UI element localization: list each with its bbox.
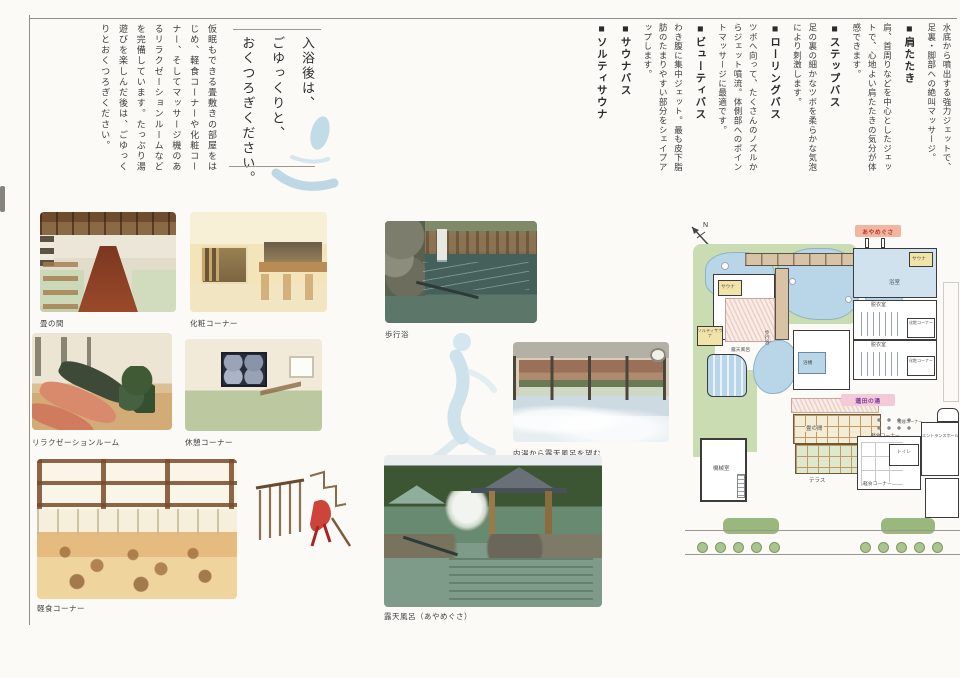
map-corridor — [775, 268, 789, 340]
photo-detail — [264, 242, 322, 262]
page-top-rule — [30, 18, 957, 19]
map-room-label: トイレ — [897, 449, 911, 454]
photo-detail — [650, 348, 666, 362]
watercolor-figure-illustration — [410, 320, 515, 470]
north-label: N — [703, 222, 708, 230]
map-room-label: 露天風呂 — [731, 348, 750, 354]
bath-section-body: 足の裏の細かなツボを柔らかな気泡により刺激します。 — [789, 23, 820, 173]
photo-detail — [223, 355, 264, 384]
photo-detail — [119, 366, 155, 413]
map-room-label: 化粧コーナー — [908, 321, 934, 326]
map-lockers — [861, 352, 901, 376]
photo-makeup-corner — [190, 212, 327, 312]
photo-caption: 休憩コーナー — [185, 437, 233, 448]
map-tree — [769, 542, 780, 553]
bath-section-heading: ■サウナバス — [616, 23, 635, 173]
map-bushes — [723, 518, 779, 534]
map-room-label: ソルティサウナ — [697, 329, 723, 339]
photo-indoor-bath-view — [513, 342, 669, 442]
photo-detail — [513, 398, 669, 442]
map-path-line — [685, 554, 960, 555]
map-lockers — [861, 312, 901, 336]
map-tree — [697, 542, 708, 553]
photo-detail — [40, 212, 176, 235]
map-pool-blob — [753, 340, 797, 394]
map-pool-striped — [707, 354, 747, 397]
photo-detail — [406, 231, 537, 253]
map-bushes — [881, 518, 935, 534]
stairs-sketch-illustration — [252, 462, 352, 567]
map-room-label: 畳の間 — [805, 426, 824, 432]
map-rock — [721, 262, 729, 270]
map-room-label: エントランスホール — [922, 434, 959, 439]
photo-detail — [289, 356, 314, 378]
photo-detail — [471, 488, 567, 493]
map-tree — [914, 542, 925, 553]
watercolor-splash-illustration — [262, 95, 347, 210]
map-room-unlabeled — [937, 408, 959, 422]
map-tree — [878, 542, 889, 553]
map-room-label: 歩行浴 — [763, 330, 769, 344]
title-top-rule — [233, 29, 321, 30]
map-room-label: 喫煙コーナー — [897, 420, 923, 425]
brochure-page: 入浴後は、 ごゆっくりと、 おくつろぎください。 仮眠もできる畳敷きの部屋をはじ… — [0, 0, 960, 678]
intro-paragraph: 仮眠もできる畳敷きの部屋をはじめ、軽食コーナーや化粧コーナー、そしてマッサージ機… — [92, 24, 220, 176]
map-tree — [751, 542, 762, 553]
photo-detail — [37, 532, 237, 599]
bath-section-heading: ■ソルティサウナ — [592, 23, 611, 173]
photo-detail — [37, 459, 237, 509]
bath-section-heading: ■ビューティバス — [690, 23, 709, 173]
photo-detail — [388, 485, 445, 503]
bath-section-body: わき腹に集中ジェット。最も皮下脂肪のたまりやすい部分をシェイプアップします。 — [640, 23, 686, 173]
photo-detail — [513, 356, 669, 400]
photo-detail — [261, 274, 321, 300]
map-room-label: サウナ — [721, 284, 735, 289]
page-title-line: おくつろぎください。 — [232, 36, 262, 186]
facility-map: N あやめぐさ 浴室 サウナ ソルティサウナ 脱衣室 化粧コ — [685, 222, 960, 567]
map-room-label: 脱衣室 — [871, 343, 886, 349]
bath-section-heading: ■ステップバス — [825, 23, 844, 173]
photo-detail — [132, 270, 176, 312]
page-left-rule — [29, 15, 30, 625]
bath-descriptions: 水底から噴出する強力ジェットで、足裏・脚部への絶叫マッサージ。 ■肩たたき 肩、… — [572, 23, 954, 173]
map-room-label: 浴室 — [889, 280, 900, 286]
map-room-label: 浴槽 — [803, 360, 812, 365]
map-tree — [932, 542, 943, 553]
map-cutoff-outline — [943, 282, 959, 402]
map-room-entrance — [921, 422, 959, 476]
map-room-toilet — [889, 444, 919, 466]
photo-caption: 畳の間 — [40, 318, 64, 329]
photo-caption: 露天風呂（あやめぐさ） — [384, 611, 472, 622]
map-tree — [896, 542, 907, 553]
bath-section-heading: ■肩たたき — [900, 23, 919, 173]
map-chimney — [865, 238, 869, 248]
bath-section-heading: ■ローリングバス — [765, 23, 784, 173]
map-badge-ayamegusa: あやめぐさ — [855, 225, 901, 237]
bath-section-body: 肩、首周りなどを中心としたジェットで、心地よい肩たたきの気分が体感できます。 — [849, 23, 895, 173]
photo-caption: リラクゼーションルーム — [32, 437, 120, 448]
map-room-label: 脱衣室 — [871, 303, 886, 309]
photo-detail — [445, 491, 489, 531]
bath-section-body: ツボへ向って、たくさんのノズルからジェット噴流。体側部へのポイントマッサージに最… — [714, 23, 760, 173]
photo-detail — [259, 262, 328, 272]
scan-edge-mark — [0, 186, 5, 212]
bath-lead-text: 水底から噴出する強力ジェットで、足裏・脚部への絶叫マッサージ。 — [923, 23, 954, 173]
map-chimney — [881, 238, 885, 248]
map-tree — [715, 542, 726, 553]
photo-walking-bath — [385, 221, 537, 323]
photo-detail — [437, 229, 448, 260]
photo-caption: 化粧コーナー — [190, 318, 238, 329]
photo-snack-corner — [37, 459, 237, 599]
map-room-label: サウナ — [912, 256, 926, 261]
map-stairs — [737, 474, 745, 498]
photo-detail — [202, 248, 218, 281]
map-room-label: 機械室 — [713, 466, 730, 472]
photo-tatami-room — [40, 212, 176, 312]
map-rock — [845, 296, 852, 303]
map-room-label: 軽食コーナー — [863, 482, 892, 488]
map-badge-hasuda-no-yu: 蓮田の湯 — [841, 394, 895, 406]
map-room-unlabeled — [925, 478, 959, 518]
map-room-label: 化粧コーナー — [908, 359, 934, 364]
map-path-line — [685, 530, 960, 531]
photo-detail — [37, 509, 237, 534]
map-tree — [860, 542, 871, 553]
photo-caption: 歩行浴 — [385, 329, 409, 340]
photo-caption: 軽食コーナー — [37, 603, 85, 614]
map-room-label: テラス — [809, 478, 825, 484]
photo-detail — [449, 558, 593, 604]
map-tree — [733, 542, 744, 553]
photo-rest-corner — [185, 339, 322, 431]
photo-relaxation-room — [32, 333, 172, 430]
map-rock — [789, 278, 796, 285]
photo-open-air-bath — [384, 455, 602, 607]
photo-detail — [43, 262, 78, 310]
